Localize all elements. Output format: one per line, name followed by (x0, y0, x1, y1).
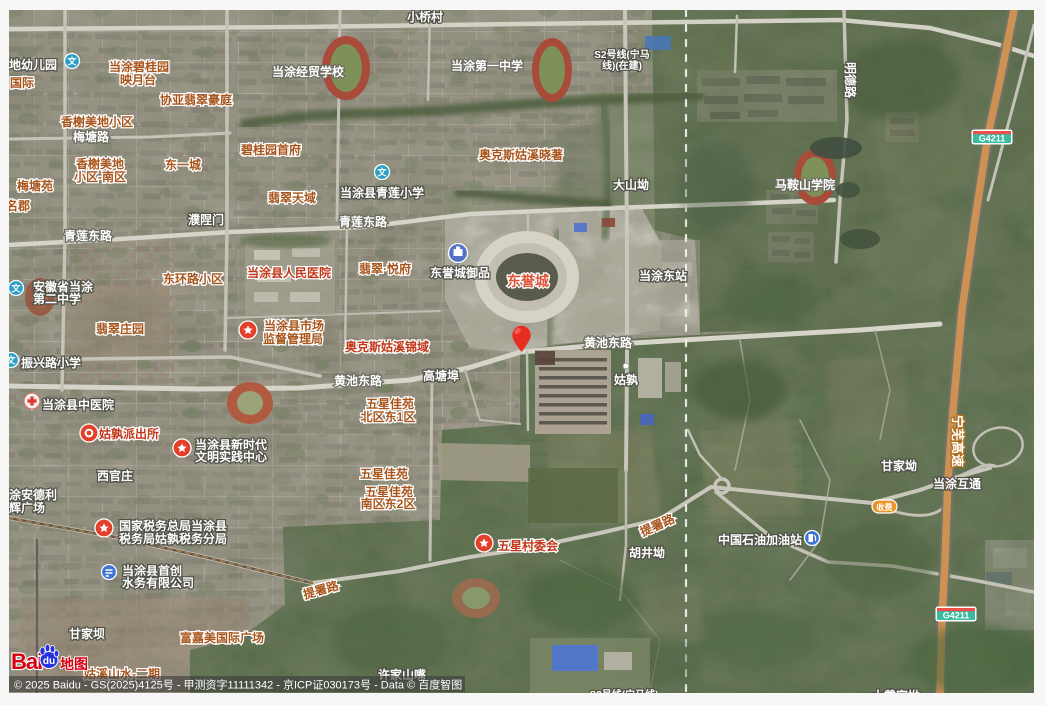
svg-text:姑孰派出所: 姑孰派出所 (99, 426, 159, 441)
svg-text:文: 文 (376, 167, 387, 178)
svg-text:协亚翡翠豪庭: 协亚翡翠豪庭 (160, 92, 232, 107)
svg-text:翡翠·悦府: 翡翠·悦府 (359, 261, 411, 276)
svg-text:辉广场: 辉广场 (9, 500, 45, 515)
svg-text:当涂东站: 当涂东站 (639, 268, 687, 283)
svg-text:北区东1区: 北区东1区 (361, 409, 416, 424)
svg-text:高塘埠: 高塘埠 (423, 368, 459, 383)
svg-text:当涂县市场: 当涂县市场 (264, 318, 324, 333)
svg-text:甘家坝: 甘家坝 (69, 626, 105, 641)
svg-text:奥克斯姑溪锦域: 奥克斯姑溪锦域 (345, 339, 429, 354)
svg-text:五星佳苑: 五星佳苑 (366, 396, 414, 411)
svg-text:奥克斯姑溪晓著: 奥克斯姑溪晓著 (479, 147, 563, 162)
svg-text:涂安德利: 涂安德利 (9, 487, 57, 502)
svg-text:梅塘苑: 梅塘苑 (17, 178, 53, 193)
svg-text:大山坳: 大山坳 (613, 177, 649, 192)
svg-text:翡翠天域: 翡翠天域 (268, 190, 316, 205)
svg-text:线)(在建): 线)(在建) (602, 59, 642, 72)
svg-text:东一城: 东一城 (165, 157, 201, 172)
svg-text:明德路: 明德路 (843, 62, 858, 99)
svg-text:振兴路小学: 振兴路小学 (21, 355, 81, 370)
svg-text:地图: 地图 (60, 656, 88, 672)
svg-text:国际: 国际 (10, 76, 34, 90)
svg-text:甘家坳: 甘家坳 (881, 458, 917, 473)
svg-text:当涂县青莲小学: 当涂县青莲小学 (340, 185, 424, 200)
svg-text:地幼儿园: 地幼儿园 (9, 57, 57, 72)
svg-text:当涂经贸学校: 当涂经贸学校 (272, 64, 345, 79)
svg-text:监督管理局: 监督管理局 (263, 331, 323, 346)
svg-text:香榭美地: 香榭美地 (75, 156, 124, 171)
svg-text:水务有限公司: 水务有限公司 (122, 575, 194, 590)
svg-text:G4211: G4211 (943, 611, 970, 621)
svg-text:小桥村: 小桥村 (407, 9, 443, 24)
svg-text:当涂第一中学: 当涂第一中学 (451, 58, 523, 73)
svg-text:胡井坳: 胡井坳 (629, 545, 665, 560)
svg-text:五星佳苑: 五星佳苑 (360, 466, 408, 481)
svg-text:五星村委会: 五星村委会 (498, 538, 559, 553)
svg-text:东誉城: 东誉城 (507, 273, 549, 289)
svg-text:名郡: 名郡 (6, 198, 30, 213)
svg-text:香榭美地小区: 香榭美地小区 (60, 114, 133, 129)
svg-text:收费: 收费 (877, 502, 893, 512)
svg-text:青莲东路: 青莲东路 (64, 228, 113, 243)
svg-text:税务局姑孰税务分局: 税务局姑孰税务分局 (119, 531, 227, 546)
svg-text:G4211: G4211 (979, 134, 1006, 144)
svg-text:当涂县人民医院: 当涂县人民医院 (247, 265, 331, 280)
svg-text:© 2025 Baidu - GS(2025)4125号 -: © 2025 Baidu - GS(2025)4125号 - 甲测资字11111… (14, 678, 462, 692)
svg-text:姑孰: 姑孰 (614, 372, 638, 387)
svg-text:梅塘路: 梅塘路 (73, 129, 110, 144)
svg-text:当涂碧桂园: 当涂碧桂园 (109, 59, 169, 74)
svg-text:小区-南区: 小区-南区 (74, 169, 126, 184)
svg-text:东环路小区: 东环路小区 (163, 271, 223, 286)
svg-text:第二中学: 第二中学 (33, 291, 81, 306)
svg-text:黄池东路: 黄池东路 (584, 335, 633, 350)
svg-text:翡翠庄园: 翡翠庄园 (96, 321, 144, 336)
svg-text:du: du (43, 656, 55, 667)
svg-text:S2号线(宁马: S2号线(宁马 (594, 48, 650, 61)
svg-text:碧桂园首府: 碧桂园首府 (240, 142, 301, 157)
svg-text:当涂互通: 当涂互通 (933, 476, 981, 491)
svg-text:东誉城御品: 东誉城御品 (430, 265, 490, 280)
svg-text:文: 文 (66, 56, 77, 67)
svg-text:青莲东路: 青莲东路 (339, 214, 388, 229)
svg-text:南区东2区: 南区东2区 (361, 496, 416, 511)
svg-text:中国石油加油站: 中国石油加油站 (718, 532, 802, 547)
svg-text:Bai: Bai (11, 649, 42, 674)
svg-text:映月台: 映月台 (120, 72, 156, 87)
svg-text:当涂县中医院: 当涂县中医院 (42, 397, 114, 412)
svg-text:西官庄: 西官庄 (97, 468, 133, 483)
svg-text:文: 文 (10, 283, 21, 294)
svg-text:马鞍山学院: 马鞍山学院 (775, 177, 835, 192)
svg-text:文明实践中心: 文明实践中心 (195, 449, 267, 464)
svg-text:黄池东路: 黄池东路 (334, 373, 383, 388)
svg-text:国家税务总局当涂县: 国家税务总局当涂县 (119, 518, 227, 533)
svg-text:濮陧门: 濮陧门 (188, 212, 224, 227)
svg-text:富嘉美国际广场: 富嘉美国际广场 (180, 630, 264, 645)
svg-text:宁芜高速: 宁芜高速 (950, 415, 965, 467)
